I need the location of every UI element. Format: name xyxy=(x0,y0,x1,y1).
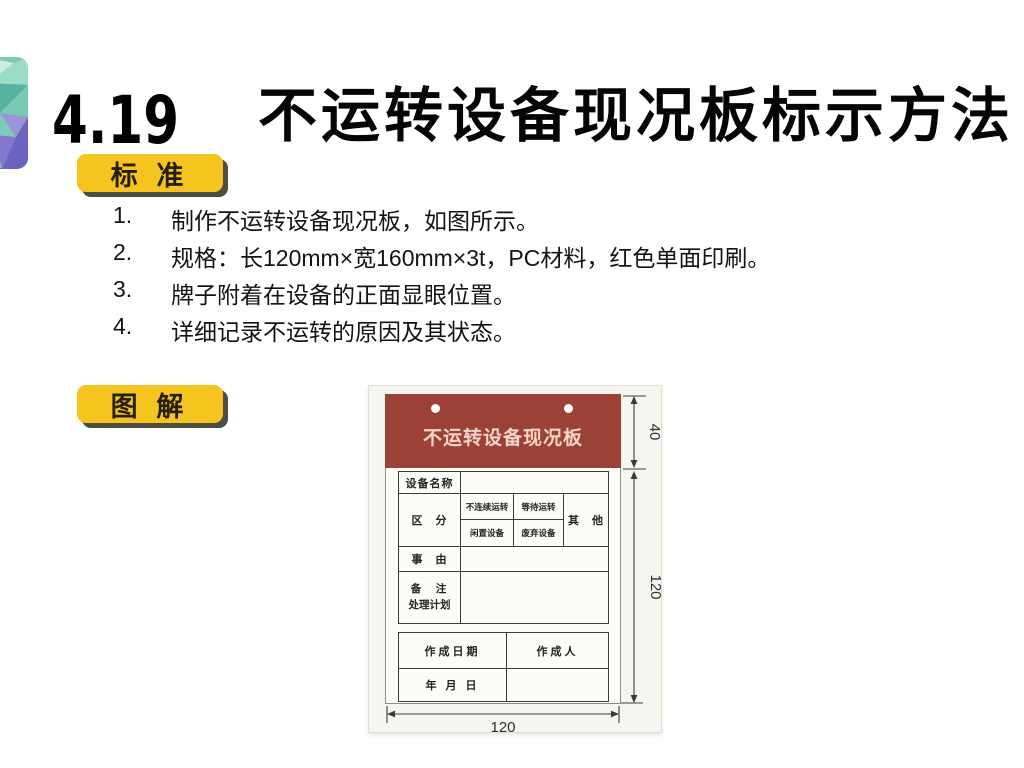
diagram-badge: 图 解 xyxy=(77,385,223,423)
standard-badge: 标 准 xyxy=(77,154,223,192)
list-item: 4. 详细记录不运转的原因及其状态。 xyxy=(113,313,833,350)
slide-logo xyxy=(0,57,28,169)
author-value-cell xyxy=(507,669,608,701)
remark-value-cell xyxy=(461,572,608,623)
page-title: 不运转设备现况板标示方法 xyxy=(258,84,1014,149)
placard-main-table: 设备名称 区 分 不连续运转 等待运转 其 他 闲置设备 废弃设备 事 由 备 … xyxy=(398,471,609,624)
list-item-text: 制作不运转设备现况板，如图所示。 xyxy=(171,202,539,236)
list-item-text: 规格：长120mm×宽160mm×3t，PC材料，红色单面印刷。 xyxy=(171,239,770,273)
placard-header: 不运转设备现况板 xyxy=(385,394,621,468)
equipment-name-value-cell xyxy=(461,472,608,494)
placard-footer-table: 作成日期 作成人 年 月 日 xyxy=(398,632,609,702)
section-number: 4.19 xyxy=(52,88,179,154)
hanging-hole-icon xyxy=(564,404,573,413)
creation-date-label: 作成日期 xyxy=(399,633,507,669)
category-option-scrapped: 废弃设备 xyxy=(514,520,564,547)
author-label: 作成人 xyxy=(507,633,608,669)
list-item: 3. 牌子附着在设备的正面显眼位置。 xyxy=(113,276,833,313)
list-item-number: 1. xyxy=(113,202,171,229)
logo-polygon-art xyxy=(0,57,28,169)
remark-plan-label: 备 注 处理计划 xyxy=(399,572,461,623)
list-item-text: 牌子附着在设备的正面显眼位置。 xyxy=(171,276,516,310)
remark-label: 备 注 xyxy=(411,582,449,597)
ymd-label: 年 月 日 xyxy=(399,669,507,701)
dim-width: 120 xyxy=(490,719,515,734)
category-other-label: 其 他 xyxy=(564,494,608,547)
list-item-text: 详细记录不运转的原因及其状态。 xyxy=(171,313,516,347)
placard-photo: 不运转设备现况板 设备名称 区 分 不连续运转 等待运转 其 他 闲置设备 废弃… xyxy=(368,385,662,733)
placard-title: 不运转设备现况板 xyxy=(385,423,621,450)
reason-label: 事 由 xyxy=(399,547,461,572)
list-item-number: 4. xyxy=(113,313,171,340)
list-item-number: 2. xyxy=(113,239,171,266)
category-option-idle: 闲置设备 xyxy=(461,520,514,547)
placard-card: 不运转设备现况板 设备名称 区 分 不连续运转 等待运转 其 他 闲置设备 废弃… xyxy=(385,394,621,704)
dim-body-height: 120 xyxy=(647,574,663,599)
list-item: 1. 制作不运转设备现况板，如图所示。 xyxy=(113,202,833,239)
dim-header-height: 40 xyxy=(646,424,663,441)
equipment-name-label: 设备名称 xyxy=(399,472,461,494)
category-option-discontinuous: 不连续运转 xyxy=(461,494,514,520)
list-item: 2. 规格：长120mm×宽160mm×3t，PC材料，红色单面印刷。 xyxy=(113,239,833,276)
list-item-number: 3. xyxy=(113,276,171,303)
standard-list: 1. 制作不运转设备现况板，如图所示。 2. 规格：长120mm×宽160mm×… xyxy=(113,202,833,350)
hanging-hole-icon xyxy=(431,404,440,413)
reason-value-cell xyxy=(461,547,608,572)
category-option-waiting: 等待运转 xyxy=(514,494,564,520)
category-label: 区 分 xyxy=(399,494,461,547)
plan-label: 处理计划 xyxy=(409,598,451,613)
